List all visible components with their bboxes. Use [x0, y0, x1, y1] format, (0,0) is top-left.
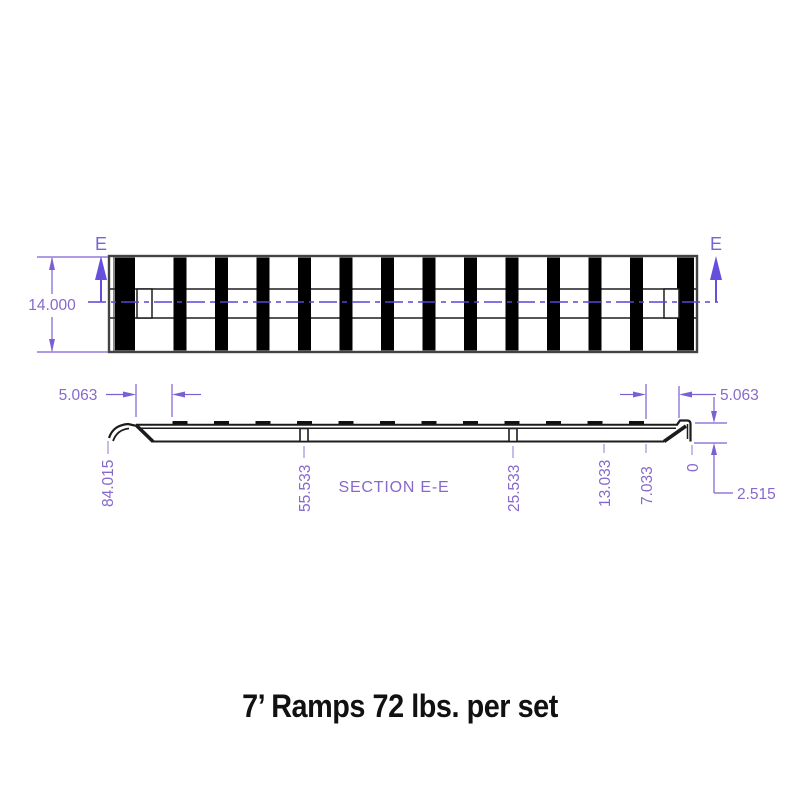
- grip-stripe: [547, 258, 560, 351]
- right-notch: [664, 289, 679, 318]
- grip-stripe: [464, 258, 477, 351]
- tread-cleat: [380, 421, 395, 424]
- drop-dimension: [694, 397, 733, 493]
- tread-cleat: [214, 421, 229, 424]
- grip-stripe: [506, 258, 519, 351]
- tread-cleat: [588, 421, 603, 424]
- station-label-25: 25.533: [506, 465, 523, 512]
- left-lip-inner: [113, 429, 129, 442]
- ramp-drawing: E E 14.000: [0, 0, 800, 800]
- section-arrow-label-left: E: [95, 234, 107, 254]
- grip-stripe: [257, 258, 270, 351]
- tread-cleat: [629, 421, 644, 424]
- right-offset-dimension: [620, 384, 716, 419]
- station-label-13: 13.033: [597, 460, 614, 507]
- station-label-55: 55.533: [297, 465, 314, 512]
- tread-cleat: [422, 421, 437, 424]
- left-offset-dimension-label: 5.063: [59, 387, 98, 404]
- drawing-page: E E 14.000: [0, 0, 800, 800]
- left-offset-dimension: [106, 384, 201, 417]
- section-name-label: SECTION E-E: [338, 479, 449, 496]
- tread-cleat: [546, 421, 561, 424]
- tread-cleat: [256, 421, 271, 424]
- station-label-7: 7.033: [639, 466, 656, 505]
- support-post-left: [300, 429, 308, 442]
- support-post-right: [509, 429, 517, 442]
- grip-stripe: [423, 258, 436, 351]
- tread-cleat: [339, 421, 354, 424]
- tread-cleat: [463, 421, 478, 424]
- ramp-body-outline: [109, 256, 697, 352]
- grip-stripe: [340, 258, 353, 351]
- grip-stripe: [215, 258, 228, 351]
- right-offset-dimension-label: 5.063: [720, 387, 759, 404]
- drawing-title: 7’ Ramps 72 lbs. per set: [40, 688, 760, 725]
- grip-stripe: [174, 258, 187, 351]
- station-leaders: [108, 441, 692, 458]
- grip-stripe: [381, 258, 394, 351]
- grip-stripe: [630, 258, 643, 351]
- tread-cleat: [173, 421, 188, 424]
- drop-dimension-label: 2.515: [737, 486, 776, 503]
- section-view: 5.063 5.063 2.515: [59, 384, 776, 512]
- grip-stripe: [298, 258, 311, 351]
- station-label-0: 0: [685, 463, 702, 472]
- section-arrow-label-right: E: [710, 234, 722, 254]
- station-label-84: 84.015: [100, 460, 117, 507]
- grip-stripe: [115, 258, 135, 351]
- tread-cleat: [297, 421, 312, 424]
- tread-cleat: [505, 421, 520, 424]
- grip-stripe: [589, 258, 602, 351]
- width-dimension-label: 14.000: [28, 297, 76, 314]
- left-notch: [137, 289, 152, 318]
- top-view: E E 14.000: [28, 234, 722, 352]
